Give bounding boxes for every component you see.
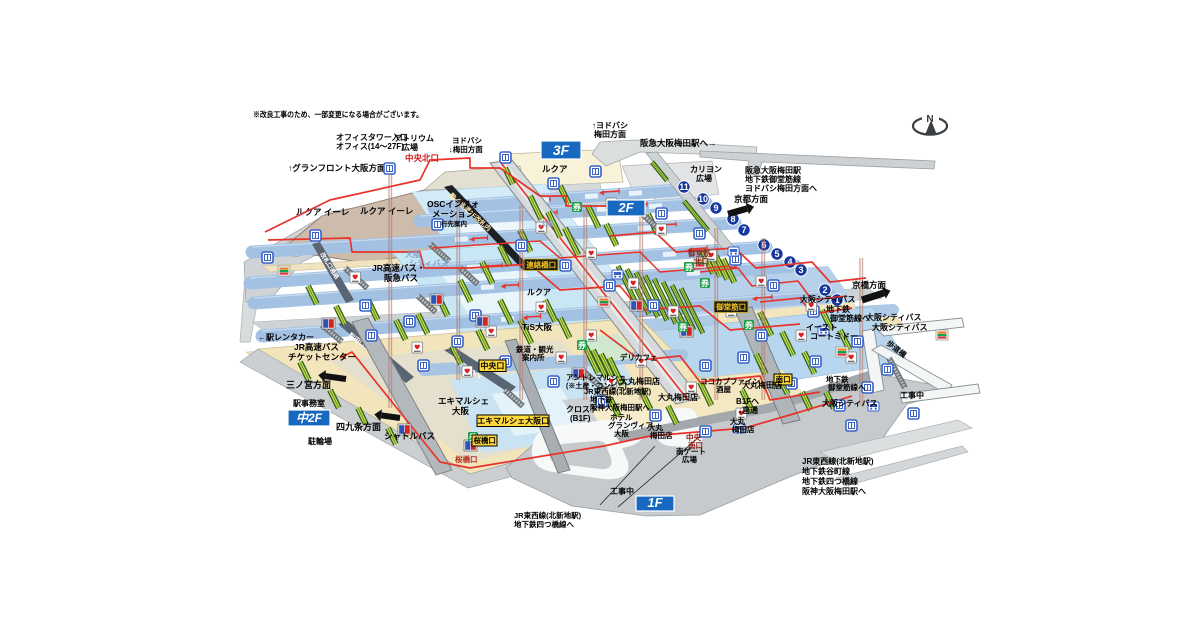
svg-text:阪神大阪梅田駅へ: 阪神大阪梅田駅へ	[590, 402, 650, 412]
svg-text:梅田店: 梅田店	[732, 424, 755, 434]
svg-text:桜橋口: 桜橋口	[455, 454, 478, 464]
svg-text:エキマルシェ: エキマルシェ	[438, 396, 489, 406]
svg-text:大阪シティバス: 大阪シティバス	[866, 312, 922, 322]
svg-text:ヨドバシ梅田方面へ: ヨドバシ梅田方面へ	[745, 183, 817, 193]
svg-text:TiS大阪: TiS大阪	[522, 322, 553, 332]
svg-text:地下鉄: 地下鉄	[826, 304, 851, 314]
svg-text:コートミドー: コートミドー	[810, 332, 858, 341]
svg-text:工事中: 工事中	[900, 390, 924, 400]
svg-text:JR東西線(北新地駅): JR東西線(北新地駅)	[514, 510, 582, 520]
svg-text:2F: 2F	[617, 200, 634, 215]
svg-text:10: 10	[698, 194, 708, 204]
svg-text:メーション: メーション	[432, 209, 475, 219]
svg-text:券: 券	[678, 322, 688, 332]
svg-text:大阪: 大阪	[614, 428, 629, 438]
svg-text:大阪: 大阪	[540, 219, 555, 228]
svg-text:阪急バス: 阪急バス	[384, 273, 418, 283]
svg-text:大阪シティバス: 大阪シティバス	[800, 294, 856, 304]
svg-text:梅田方面: 梅田方面	[594, 129, 626, 139]
svg-text:JR高速バス・: JR高速バス・	[372, 263, 425, 273]
svg-text:アトリウム: アトリウム	[394, 134, 434, 143]
svg-text:連絡橋口: 連絡橋口	[526, 260, 556, 270]
svg-text:広場: 広場	[696, 173, 712, 183]
svg-text:↑グランフロント大阪方面: ↑グランフロント大阪方面	[288, 163, 386, 173]
svg-text:梅田店: 梅田店	[650, 430, 673, 440]
svg-text:大丸梅田店: 大丸梅田店	[620, 376, 660, 386]
svg-text:ヨドバシ: ヨドバシ	[452, 136, 482, 145]
svg-text:大阪: 大阪	[452, 406, 470, 416]
svg-text:駐輪場: 駐輪場	[308, 436, 332, 446]
svg-text:(B1F): (B1F)	[570, 414, 591, 423]
svg-text:御堂筋線へ: 御堂筋線へ	[827, 382, 866, 392]
svg-text:ルクア: ルクア	[542, 164, 568, 174]
svg-text:エキマルシェ大阪口: エキマルシェ大阪口	[477, 416, 549, 426]
svg-text:9: 9	[713, 203, 718, 213]
svg-text:阪神大阪梅田駅へ: 阪神大阪梅田駅へ	[802, 486, 866, 496]
svg-text:工事中: 工事中	[610, 486, 634, 496]
svg-text:4: 4	[787, 257, 792, 267]
svg-text:1F: 1F	[647, 495, 663, 510]
svg-text:クロスト: クロスト	[566, 404, 598, 414]
svg-text:イースト: イースト	[806, 323, 838, 332]
svg-text:地下鉄四つ橋線へ: 地下鉄四つ橋線へ	[514, 519, 574, 529]
svg-text:ルクア: ルクア	[527, 287, 551, 297]
svg-text:↓梅田方面: ↓梅田方面	[449, 144, 483, 154]
svg-text:5: 5	[774, 249, 779, 259]
svg-text:地下鉄四つ橋線: 地下鉄四つ橋線	[802, 476, 858, 486]
svg-text:地下鉄御堂筋線: 地下鉄御堂筋線	[745, 174, 801, 184]
svg-text:広場: 広場	[402, 142, 418, 152]
svg-text:3F: 3F	[553, 142, 570, 158]
svg-text:駅事務室: 駅事務室	[293, 398, 325, 408]
svg-text:阪急大阪梅田駅へ→: 阪急大阪梅田駅へ→	[640, 138, 717, 148]
svg-text:チケットセンター: チケットセンター	[288, 352, 356, 362]
svg-text:北口: 北口	[694, 256, 709, 266]
svg-text:御堂筋線へ: 御堂筋線へ	[829, 313, 870, 323]
svg-text:券: 券	[572, 202, 582, 212]
svg-text:←駅レンタカー: ←駅レンタカー	[258, 332, 314, 342]
svg-text:B1Fへ: B1Fへ	[736, 397, 759, 406]
svg-text:OSCインフォ: OSCインフォ	[427, 199, 479, 209]
svg-text:ルクア イーレ: ルクア イーレ	[360, 206, 413, 216]
svg-text:大丸梅田店: 大丸梅田店	[658, 392, 698, 402]
svg-text:御堂筋口: 御堂筋口	[715, 302, 746, 312]
svg-text:案内所: 案内所	[521, 352, 545, 362]
svg-text:デリカフェ: デリカフェ	[620, 352, 658, 362]
svg-text:京橋方面: 京橋方面	[852, 280, 887, 290]
svg-text:アントレマルシェ: アントレマルシェ	[566, 373, 626, 382]
svg-text:JR高速バス: JR高速バス	[294, 342, 339, 352]
svg-text:カリヨン: カリヨン	[690, 165, 722, 174]
svg-text:広場: 広場	[682, 454, 697, 464]
svg-text:↑ヨドバシ: ↑ヨドバシ	[592, 121, 628, 130]
svg-text:桜橋口: 桜橋口	[473, 435, 496, 445]
svg-text:酒屋: 酒屋	[716, 384, 731, 394]
svg-text:券: 券	[684, 262, 694, 272]
svg-text:券: 券	[744, 320, 754, 330]
svg-text:券: 券	[577, 340, 587, 350]
svg-text:京都方面: 京都方面	[734, 194, 769, 204]
svg-text:三ノ宮方面: 三ノ宮方面	[286, 379, 331, 390]
svg-text:中2F: 中2F	[296, 411, 323, 425]
svg-text:大阪シティバス: 大阪シティバス	[872, 322, 928, 332]
svg-text:シャトルバス: シャトルバス	[384, 431, 435, 441]
svg-text:阪急大阪梅田駅: 阪急大阪梅田駅	[745, 165, 802, 175]
svg-text:2: 2	[822, 285, 827, 295]
svg-text:中央北口: 中央北口	[405, 153, 439, 163]
svg-text:券: 券	[700, 278, 710, 288]
svg-text:7: 7	[741, 225, 746, 235]
svg-text:大阪: 大阪	[405, 249, 422, 259]
svg-text:※改良工事のため、一部変更になる場合がございます。: ※改良工事のため、一部変更になる場合がございます。	[253, 109, 423, 119]
svg-text:N: N	[926, 114, 933, 125]
svg-text:行先案内: 行先案内	[440, 219, 467, 228]
svg-text:四九条方面: 四九条方面	[336, 421, 381, 432]
svg-text:中央口: 中央口	[480, 361, 504, 371]
svg-text:3: 3	[798, 265, 803, 275]
svg-text:↓直通: ↓直通	[738, 405, 758, 415]
svg-text:11: 11	[679, 182, 689, 192]
svg-text:オフィス(14〜27F): オフィス(14〜27F)	[336, 142, 404, 151]
svg-text:JR東西線(北新地駅): JR東西線(北新地駅)	[802, 456, 874, 466]
svg-text:地下鉄谷町線: 地下鉄谷町線	[802, 466, 850, 476]
svg-text:大阪シティバス: 大阪シティバス	[822, 398, 878, 408]
